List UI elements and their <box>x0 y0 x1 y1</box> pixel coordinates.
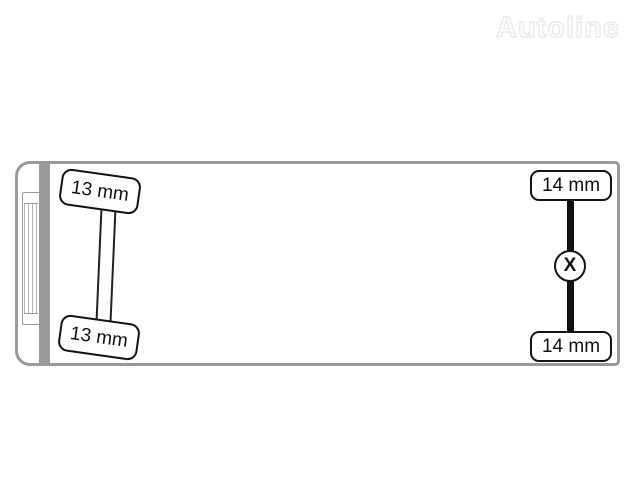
drive-axle-x-icon: X <box>554 250 586 282</box>
vehicle-outline: 13 mm 13 mm X 14 mm 14 mm <box>15 161 620 366</box>
cab-front-band <box>39 164 50 363</box>
front-grille <box>22 192 40 325</box>
front-top-wheel-tread-label: 13 mm <box>58 168 142 216</box>
grille-hatch-pattern <box>24 203 38 314</box>
tread-depth-diagram: Autoline 13 mm 13 mm X 14 mm 14 mm <box>0 0 640 480</box>
rear-top-wheel-tread-label: 14 mm <box>530 170 612 201</box>
rear-bottom-wheel-tread-label: 14 mm <box>530 331 612 362</box>
autoline-watermark: Autoline <box>496 12 620 45</box>
front-bottom-wheel-tread-label: 13 mm <box>57 314 141 362</box>
front-axle-line <box>95 206 116 325</box>
